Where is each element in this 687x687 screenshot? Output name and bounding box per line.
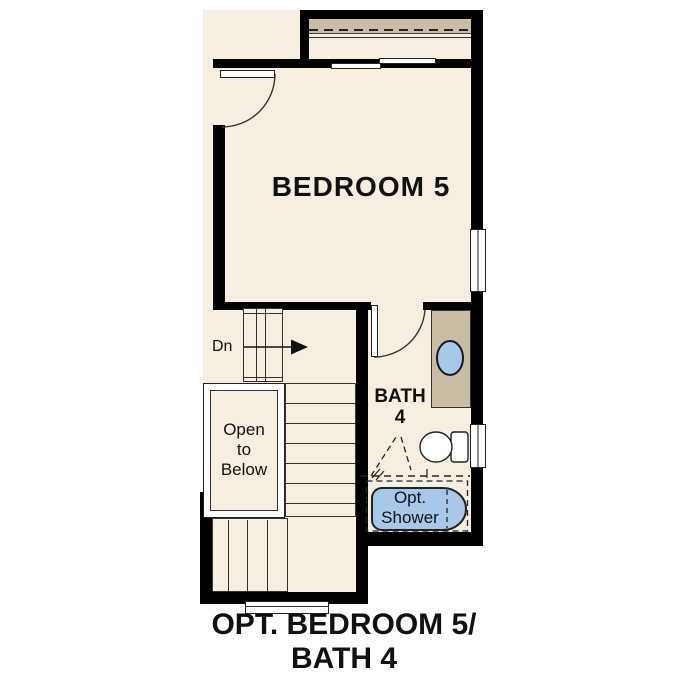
opt-shower-label: Opt. Shower [372, 488, 448, 528]
stairs-down-label: Dn [212, 338, 232, 356]
wall-bath-bottom [356, 532, 483, 546]
stair-run-lower [212, 518, 288, 592]
stair-tread-line [256, 308, 257, 382]
wall-bedroom-bottom [213, 302, 371, 310]
bedroom-door-leaf [220, 70, 275, 78]
bath-label-line2: 4 [368, 407, 432, 428]
opt-shower-line1: Opt. [372, 488, 448, 508]
entry-ledge-line [245, 606, 329, 607]
wall-bedroom-left [213, 125, 225, 310]
stair-tread-line [285, 443, 356, 444]
plan-caption-line2: BATH 4 [104, 642, 584, 676]
plan-caption: OPT. BEDROOM 5/ BATH 4 [104, 608, 584, 676]
closet-slider-panel-upper [379, 58, 436, 64]
open-to-below-label: Open to Below [210, 420, 278, 480]
plan-caption-line1: OPT. BEDROOM 5/ [104, 608, 584, 642]
closet-shelf [309, 19, 471, 34]
bath-label: BATH 4 [368, 386, 432, 428]
bath-door-leaf [371, 305, 378, 357]
open-to-below-line1: Open [210, 420, 278, 440]
bath-label-line1: BATH [368, 386, 432, 407]
wall-bath-left [356, 302, 368, 604]
stair-tread-line [285, 483, 356, 484]
wall-closet-top [300, 10, 483, 19]
vanity-counter [431, 310, 471, 408]
stair-tread-line [267, 520, 268, 592]
stair-tread-line [285, 403, 356, 404]
open-to-below-line2: to [210, 440, 278, 460]
stair-tread-line [228, 520, 229, 592]
bath-window [470, 424, 486, 468]
stair-tread-line [265, 308, 266, 382]
stair-nosing-line [243, 377, 283, 378]
floorplan: BEDROOM 5 BATH 4 Dn Open to Below Opt. S… [0, 0, 687, 687]
stair-tread-line [285, 503, 356, 504]
stair-tread-line [247, 520, 248, 592]
stair-run-upper [243, 308, 283, 382]
stair-tread-line [285, 463, 356, 464]
wall-bath-entry-right [423, 302, 471, 310]
open-to-below-line3: Below [210, 460, 278, 480]
closet-shelf-edge-line [309, 37, 471, 38]
stair-nosing-line [243, 313, 283, 314]
closet-slider-panel-lower [331, 63, 381, 69]
bedroom-window [470, 229, 486, 292]
bedroom-label: BEDROOM 5 [241, 171, 481, 203]
stair-tread-line [285, 423, 356, 424]
opt-shower-line2: Shower [372, 508, 448, 528]
